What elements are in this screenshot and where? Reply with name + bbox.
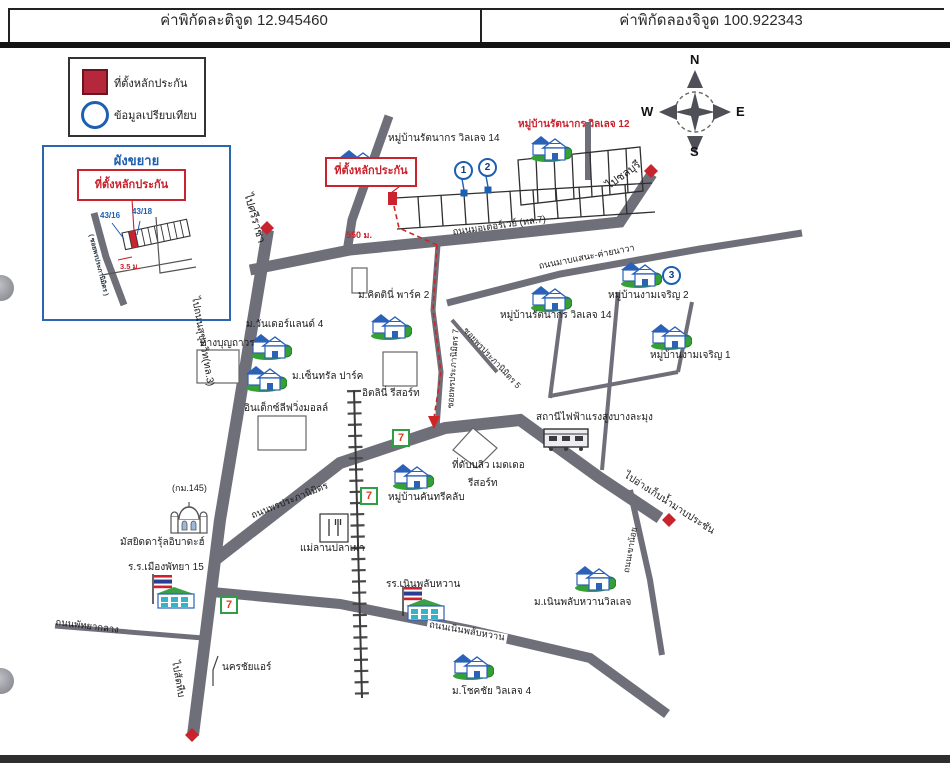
place-nakhonchai-air: นครชัยแอร์ <box>222 662 271 673</box>
longitude-value: ค่าพิกัดลองจิจูด 100.922343 <box>480 8 942 32</box>
comparison-marker-2: 2 <box>478 158 497 177</box>
place-w-meadow-line2: รีสอร์ท <box>468 478 497 489</box>
place-power-station: สถานีไฟฟ้าแรงสูงบางละมุง <box>536 412 653 423</box>
inset-house-43-16: 43/16 <box>100 211 120 220</box>
seven-eleven-icon: 7 <box>360 487 378 505</box>
scanned-map-page: ค่าพิกัดละติจูด 12.945460 ค่าพิกัดลองจิจ… <box>0 0 950 771</box>
place-wonderland4: ม.วันเดอร์แลนด์ 4 <box>246 319 323 330</box>
inset-width-label: 3.5 ม. <box>120 261 140 273</box>
place-kittinee-park2: ม.คิตตินี่ พาร์ค 2 <box>358 290 429 301</box>
place-index-mall: อินเด็กซ์ลีฟวิ่งมอลล์ <box>244 403 328 414</box>
comparison-marker-3: 3 <box>662 266 681 285</box>
place-rattanakorn14-mid: หมู่บ้านรัตนากร วิลเลจ 14 <box>500 310 612 321</box>
collateral-legend-label: ที่ตั้งหลักประกัน <box>114 74 187 92</box>
nakhonchai-pointer <box>213 656 218 686</box>
inset-drawing <box>44 147 229 319</box>
distance-label: 550 ม. <box>346 231 372 241</box>
compass-west-label: W <box>641 104 653 119</box>
collateral-callout-box: ที่ตั้งหลักประกัน <box>325 157 417 187</box>
mosque-icon <box>171 502 207 533</box>
place-boonthavorn: ห้างบุญถาวร <box>200 338 255 349</box>
power-station-icon <box>544 429 588 451</box>
km-marker-label: (กม.145) <box>172 484 207 494</box>
seven-eleven-icon: 7 <box>220 596 238 614</box>
place-rattanakorn14-top: หมู่บ้านรัตนากร วิลเลจ 14 <box>388 133 500 144</box>
pattaya-school-icon <box>153 574 194 608</box>
compass-north-label: N <box>690 52 699 67</box>
compass-rose <box>659 70 731 154</box>
scan-edge-bar <box>0 755 950 763</box>
comparison-legend-label: ข้อมูลเปรียบเทียบ <box>114 106 197 124</box>
latitude-value: ค่าพิกัดละติจูด 12.945460 <box>8 8 480 32</box>
place-pattaya-school: ร.ร.เมืองพัทยา 15 <box>128 562 204 573</box>
comparison-legend-icon <box>81 101 109 129</box>
collateral-legend-icon <box>82 69 108 95</box>
inset-house-43-18: 43/18 <box>132 207 152 216</box>
place-central-park: ม.เซ็นทรัล ปาร์ค <box>292 371 363 382</box>
inset-plan: ผังขยาย ที่ตั้งหลักประกัน 43 <box>42 145 231 321</box>
place-mosque: มัสยิดดารุ้ลอิบาดะฮ์ <box>120 537 205 548</box>
place-fish-restaurant: แม่ลานปลาเผา <box>300 543 365 554</box>
place-noen-village: ม.เนินพลับหวานวิลเลจ <box>534 597 631 608</box>
compass-east-label: E <box>736 104 745 119</box>
compass-south-label: S <box>690 144 699 159</box>
place-ngamcharoen2: หมู่บ้านงามเจริญ 2 <box>608 290 689 301</box>
map-legend: ที่ตั้งหลักประกัน ข้อมูลเปรียบเทียบ <box>68 57 206 137</box>
place-ngamcharoen1: หมู่บ้านงามเจริญ 1 <box>650 350 731 361</box>
place-itlinee-resort: อิตลินี่ รีสอร์ท <box>362 388 420 399</box>
place-country-club: หมู่บ้านคันทรีคลับ <box>388 492 465 503</box>
place-chokchai4: ม.โชคชัย วิลเลจ 4 <box>452 686 531 697</box>
place-w-meadow-line1: ที่ดับบลิว เมดเดอ <box>452 460 525 471</box>
header-rule <box>0 42 950 48</box>
place-rattanakorn12: หมู่บ้านรัตนากร วิลเลจ 12 <box>518 119 630 130</box>
header-divider <box>480 8 482 44</box>
seven-eleven-icon: 7 <box>392 429 410 447</box>
place-noen-school: รร.เนินพลับหวาน <box>386 579 460 590</box>
noen-school-icon <box>403 586 444 620</box>
comparison-marker-1: 1 <box>454 161 473 180</box>
